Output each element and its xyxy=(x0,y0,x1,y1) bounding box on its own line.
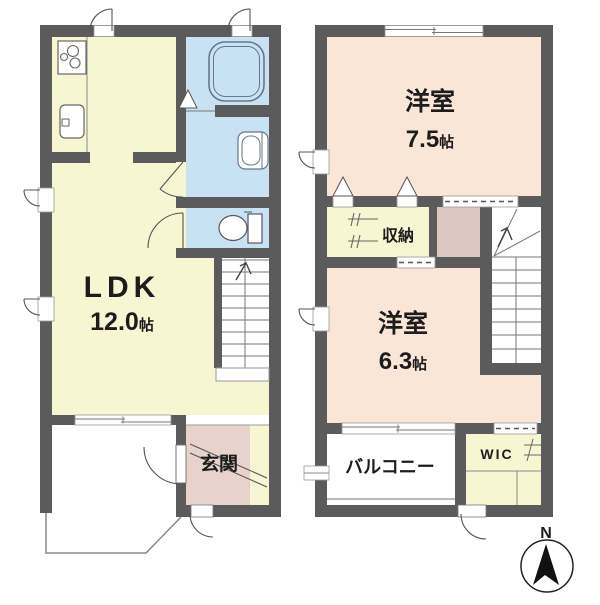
youshitsu75-label: 洋室 xyxy=(405,87,455,116)
compass-north-label: N xyxy=(540,525,552,542)
wic-door-arc-icon xyxy=(461,514,486,539)
room-landing xyxy=(437,207,480,257)
front-door-leaf xyxy=(176,445,186,483)
genkan-side-hall xyxy=(250,425,269,505)
closet-opening-2 xyxy=(397,196,417,207)
closet-opening-1 xyxy=(333,196,353,207)
window-left-2f-upper xyxy=(313,150,329,174)
room-youshitsu-63-ext xyxy=(480,375,541,423)
washbasin-icon xyxy=(238,132,268,169)
room-youshitsu-63 xyxy=(327,268,480,423)
genkan-label: 玄関 xyxy=(200,452,238,475)
genkan-door-arc-icon xyxy=(190,514,213,537)
wic-label: WIC xyxy=(480,446,513,462)
shuno-label: 収納 xyxy=(382,226,414,245)
room-youshitsu-75 xyxy=(327,37,541,196)
north-arrow-icon: N xyxy=(521,525,573,592)
window-left-1f-upper xyxy=(38,188,54,212)
door-opening-top-bath xyxy=(232,26,252,37)
door-opening-top-kitchen xyxy=(94,26,114,37)
window-left-1f-lower xyxy=(38,297,54,321)
floor1-plan: LDK 12.0帖 玄関 xyxy=(24,9,281,553)
casement-window-arc-icon xyxy=(24,190,40,206)
window-left-2f-lower xyxy=(313,307,329,331)
youshitsu63-size-value: 6.3 xyxy=(379,348,412,375)
youshitsu63-size-unit: 帖 xyxy=(412,355,427,373)
casement-window-arc-icon xyxy=(24,299,40,315)
youshitsu75-size-unit: 帖 xyxy=(439,133,454,151)
front-door-arc-icon xyxy=(144,447,181,484)
wic-south-door-leaf xyxy=(458,505,486,517)
floorplan-canvas: LDK 12.0帖 玄関 xyxy=(0,0,600,600)
balcony-label: バルコニー xyxy=(345,457,435,477)
kitchen-sink-icon xyxy=(60,105,84,138)
ldk-label: LDK xyxy=(84,271,161,304)
genkan-south-door-leaf xyxy=(191,505,213,517)
stove-icon xyxy=(58,41,86,74)
youshitsu75-size-value: 7.5 xyxy=(406,126,439,153)
youshitsu63-label: 洋室 xyxy=(378,309,428,338)
floor2-plan: 洋室 7.5帖 収納 洋室 6.3帖 バルコニー WIC xyxy=(299,25,553,539)
ldk-size-unit: 帖 xyxy=(139,316,154,334)
porch-outline xyxy=(46,513,181,553)
ldk-size-value: 12.0 xyxy=(90,308,139,336)
floorplan-page: LDK 12.0帖 玄関 xyxy=(0,0,600,600)
